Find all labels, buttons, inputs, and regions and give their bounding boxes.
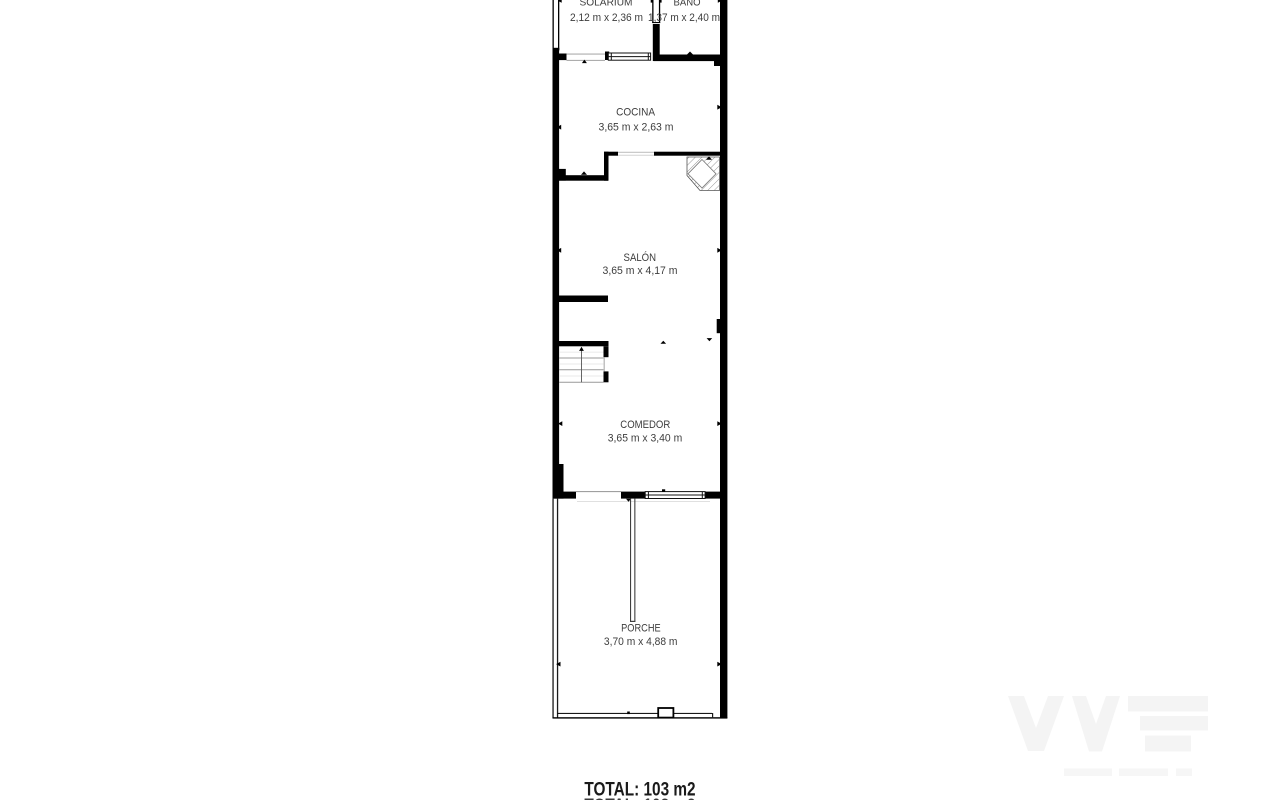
svg-text:3,65 m x 2,63 m: 3,65 m x 2,63 m (599, 122, 674, 134)
svg-text:COCINA: COCINA (616, 107, 656, 119)
svg-text:SOLARIUM: SOLARIUM (580, 0, 633, 9)
svg-text:1,37 m x 2,40 m: 1,37 m x 2,40 m (648, 12, 720, 24)
svg-text:TOTAL: 103 m2: TOTAL: 103 m2 (584, 795, 695, 800)
svg-text:3,65 m x 3,40 m: 3,65 m x 3,40 m (608, 433, 683, 445)
svg-text:2,12 m x 2,36 m: 2,12 m x 2,36 m (570, 12, 643, 24)
svg-text:3,70 m x 4,88 m: 3,70 m x 4,88 m (604, 636, 678, 648)
svg-text:SALÓN: SALÓN (624, 251, 657, 264)
svg-text:PORCHE: PORCHE (621, 623, 661, 635)
svg-text:BAÑO: BAÑO (674, 0, 701, 9)
svg-text:3,65 m x 4,17 m: 3,65 m x 4,17 m (603, 265, 678, 277)
svg-text:COMEDOR: COMEDOR (620, 419, 670, 431)
